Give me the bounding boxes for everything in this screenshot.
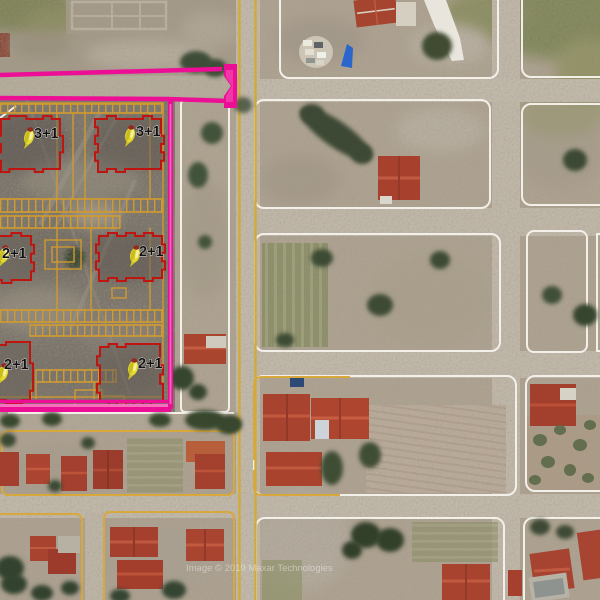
svg-text:2+1: 2+1 [138,356,163,372]
svg-text:2+1: 2+1 [2,246,27,262]
svg-text:Image © 2019 Maxar Technologie: Image © 2019 Maxar Technologies [186,563,333,574]
svg-text:2+1: 2+1 [4,357,29,373]
svg-text:3+1: 3+1 [136,124,161,140]
svg-text:3+1: 3+1 [34,126,59,142]
svg-text:2+1: 2+1 [139,244,164,260]
